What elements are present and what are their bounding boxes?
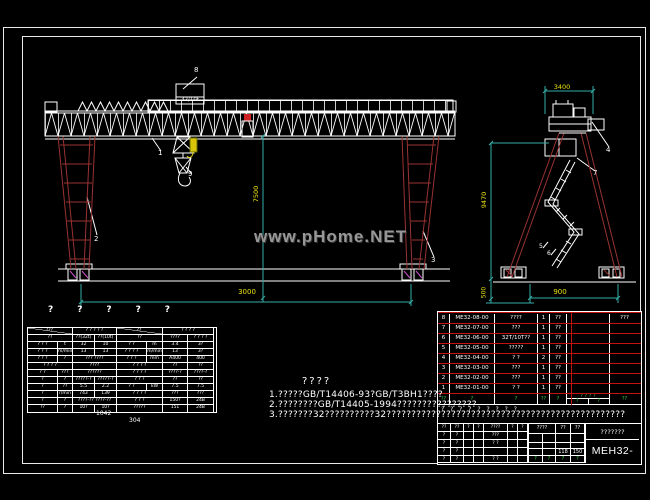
title-block: ???????????? ????? ??? ? ?? ??? ? ??????…	[438, 424, 641, 463]
callout-2: 2	[94, 235, 98, 243]
bom-row: 2ME32-02-00???1??	[438, 374, 641, 384]
under-table-num-2: 304	[129, 417, 140, 424]
drawing-number: MEH32-00	[586, 440, 639, 463]
notes-title: ????	[302, 376, 331, 387]
tb-mid-row	[529, 434, 585, 443]
watermark: www.pHome.NET	[254, 227, 407, 247]
spec-row: ? ? ????? ????? ? ?mmA400400	[28, 356, 216, 363]
front-view-girder	[45, 77, 456, 281]
bom-row: 6ME32-06-0032T/10T??1??	[438, 334, 641, 344]
bom-weight-header: ? ? ? ???	[567, 394, 610, 404]
callout-9: 9	[188, 170, 192, 178]
title-block-middle: ???????? 118150 ????	[528, 424, 586, 463]
q-mark: ?	[165, 305, 170, 315]
cad-drawing-canvas: 32/10t 8 1 9 2 3 4 7 5 6 3000 7500 3400 …	[0, 0, 650, 500]
callout-8: 8	[194, 66, 198, 74]
q-mark: ?	[77, 305, 82, 315]
bom-rows: 8ME32-08-00????1????? 7ME32-07-00???1?? …	[438, 312, 641, 394]
side-view	[493, 100, 636, 282]
tb-mid-values: 118150	[529, 449, 585, 456]
spec-row: ???5.52.2? ?kW7.57.5	[28, 384, 216, 391]
spec-row: ??????-?? ????-??? ? ?150?24B	[28, 398, 216, 405]
tb-row: ??	[438, 448, 528, 456]
spec-table: ???? ? ? ? ???? ? ? ? ????(32t)??(10t)??…	[27, 327, 217, 413]
tb-row: ????????????	[438, 424, 528, 432]
tb-mid-header: ????????	[529, 424, 585, 434]
spec-row: ???????-??????-?? ? ?????	[28, 377, 216, 384]
bom-row: 7ME32-07-00???1??	[438, 324, 641, 334]
bom-row: 3ME32-03-00???1??	[438, 364, 641, 374]
wheel-hatch	[70, 271, 422, 278]
bom-row: 4ME32-04-00? ?2??	[438, 354, 641, 364]
callout-5: 5	[539, 243, 543, 250]
bom-row: 1ME32-01-00? ?1??	[438, 384, 641, 394]
dim-side-height: 9470	[480, 189, 488, 211]
bom-red-vertical	[571, 312, 572, 405]
note-line-3: 3.???????32??????????32?????????????????…	[269, 410, 625, 420]
spec-row: ? ? ?t3210? ?m3.43?	[28, 342, 216, 349]
drawing-name: ???????	[586, 424, 639, 440]
dim-span: 3000	[234, 288, 260, 296]
spec-column-marks: ?????	[48, 305, 170, 315]
dim-base-width: 900	[549, 288, 571, 296]
spec-row: ????(32t)??(10t)??????? ? ? ?	[28, 335, 216, 342]
dim-buffer: 500	[481, 286, 488, 300]
bom-row: 8ME32-08-00????1?????	[438, 314, 641, 324]
callout-7: 7	[593, 169, 597, 177]
callout-6: 6	[547, 250, 551, 257]
bom-title-block: 8ME32-08-00????1????? 7ME32-07-00???1?? …	[437, 311, 642, 465]
tb-mid-green-row: ????	[529, 456, 585, 463]
front-view-legs	[58, 136, 439, 269]
spec-row: ? ??????????? ? ? ?????-?????-?	[28, 370, 216, 377]
side-view-legs	[506, 133, 622, 277]
tb-row: ??? ?	[438, 456, 528, 463]
tb-row: ??? ?	[438, 440, 528, 448]
q-mark: ?	[106, 305, 111, 315]
title-block-right: ??????? MEH32-00	[586, 424, 639, 463]
bom-row: 5ME32-05-00?????1??	[438, 344, 641, 354]
note-line-2: 2.????????GB/T14405-1994????????????????	[269, 400, 477, 410]
spec-row: ? ? ?m/min1313? ? ? ?m/min133?	[28, 349, 216, 356]
callout-1: 1	[158, 149, 162, 157]
under-table-num-1: 1042	[96, 410, 111, 417]
q-mark: ?	[136, 305, 141, 315]
trolley-capacity-label: 32/10t	[177, 97, 203, 103]
spec-row: ???10?10??????15124B	[28, 405, 216, 412]
title-block-left: ???????????? ????? ??? ? ?? ??? ?	[438, 424, 528, 463]
spec-row: ? ? ? ?????? ? ? ?????	[28, 363, 216, 370]
callout-3: 3	[431, 256, 435, 264]
tb-row: ?????	[438, 432, 528, 440]
spec-row: ???? ? ? ? ???? ? ? ?	[28, 328, 216, 335]
q-mark: ?	[48, 305, 53, 315]
spec-row: ?r/min743139? ? ? ???????	[28, 391, 216, 398]
note-line-1: 1.?????GB/T14406-93?GB/T3BH1????	[269, 390, 443, 400]
dim-height: 7500	[252, 183, 260, 205]
callout-4: 4	[606, 146, 610, 154]
dim-top-width: 3400	[551, 83, 573, 91]
